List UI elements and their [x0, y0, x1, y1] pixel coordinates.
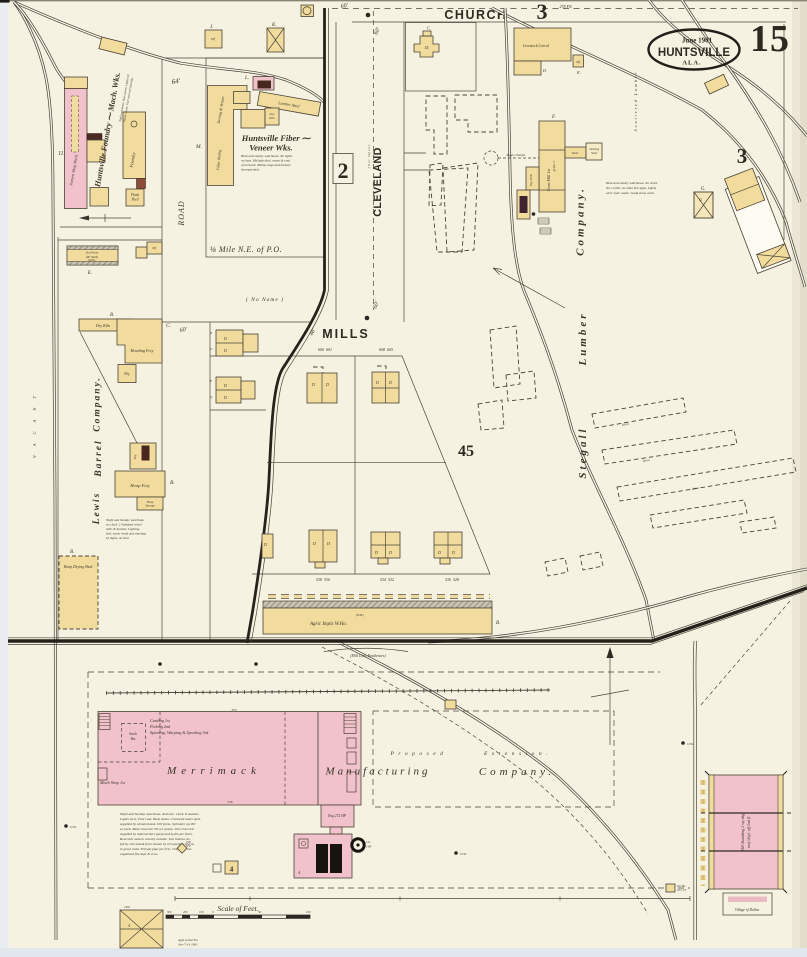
svg-text:D: D — [223, 348, 227, 353]
svg-text:Stegall: Stegall — [577, 426, 589, 478]
svg-text:B.: B. — [70, 550, 74, 555]
svg-text:CLEVELAND: CLEVELAND — [372, 147, 384, 217]
svg-text:Eng: Eng — [133, 454, 137, 460]
svg-text:supplied by elevated tank 100': supplied by elevated tank 100' press. Sp… — [120, 822, 196, 826]
svg-text:Reservoir tank in country outs: Reservoir tank in country outside. Two b… — [119, 837, 191, 841]
svg-text:A: A — [297, 870, 301, 875]
svg-text:D: D — [388, 380, 392, 385]
svg-text:MILLS: MILLS — [322, 327, 370, 341]
svg-text:E.: E. — [576, 70, 581, 75]
svg-text:Mach Shop 1st: Mach Shop 1st — [99, 780, 126, 785]
svg-text:11.: 11. — [58, 151, 65, 157]
svg-text:No 2 mills: no other fire apps: No 2 mills: no other fire apps. Lights — [605, 186, 657, 190]
svg-text:Company.: Company. — [93, 376, 103, 432]
svg-text:elect. fuel: waste. Good stone: elect. fuel: waste. Good stone work. — [606, 191, 655, 195]
svg-text:C.: C. — [427, 26, 431, 31]
svg-text:Agric Impls W.Ho.: Agric Impls W.Ho. — [309, 622, 347, 627]
svg-text:556: 556 — [227, 800, 232, 804]
svg-text:530 528: 530 528 — [445, 577, 459, 582]
svg-text:D: D — [223, 383, 227, 388]
svg-text:V A C A N T: V A C A N T — [32, 392, 37, 458]
svg-text:15: 15 — [750, 18, 790, 60]
svg-text:Huntsville Fiber ⁓: Huntsville Fiber ⁓ — [241, 133, 312, 143]
svg-text:Stock: Stock — [129, 732, 137, 736]
svg-text:O.W.: O.W. — [460, 852, 467, 856]
svg-text:Wagon Transfer: Wagon Transfer — [506, 153, 526, 157]
svg-text:Shed: Shed — [591, 152, 597, 155]
svg-text:O.W.: O.W. — [70, 825, 77, 829]
svg-text:Rm: Rm — [130, 737, 136, 741]
svg-text:100': 100' — [366, 845, 372, 849]
svg-text:Hoop Drying Shed: Hoop Drying Shed — [63, 565, 93, 569]
svg-text:Village of Dallas: Village of Dallas — [735, 908, 760, 912]
svg-text:538 536: 538 536 — [316, 577, 330, 582]
svg-text:Lumber: Lumber — [577, 311, 589, 366]
svg-text:Night and Sunday watchman: Night and Sunday watchman — [105, 518, 144, 522]
svg-text:Storage: Storage — [145, 504, 155, 508]
svg-text:Lewis: Lewis — [92, 492, 102, 526]
svg-text:B.: B. — [496, 621, 500, 626]
svg-text:300: 300 — [167, 910, 172, 914]
svg-text:(W.H.): (W.H.) — [356, 613, 364, 617]
svg-text:D: D — [437, 550, 441, 555]
svg-text:18.6: 18.6 — [124, 905, 130, 909]
svg-text:Flask: Flask — [130, 193, 139, 197]
svg-text:incorporated.: incorporated. — [241, 168, 260, 172]
svg-text:(Mill Girls Residences): (Mill Girls Residences) — [350, 654, 386, 658]
svg-text:ALA.: ALA. — [682, 60, 701, 67]
svg-text:G.: G. — [701, 187, 706, 192]
svg-text:mills & buckets. Lighting: mills & buckets. Lighting — [106, 527, 140, 531]
svg-text:Heading Fcty: Heading Fcty — [130, 348, 154, 353]
svg-text:Proposed: Proposed — [390, 751, 448, 757]
svg-text:D: D — [388, 550, 392, 555]
svg-text:Keg W.Ho: Keg W.Ho — [529, 173, 533, 187]
svg-text:⅛ Mile N.E. of P.O.: ⅛ Mile N.E. of P.O. — [210, 245, 282, 254]
svg-text:3: 3 — [537, 0, 548, 24]
svg-text:608 605: 608 605 — [379, 347, 393, 352]
svg-text:4: 4 — [230, 866, 234, 874]
svg-text:J.: J. — [210, 25, 213, 30]
svg-text:Ch.: Ch. — [366, 840, 371, 844]
svg-text:no clock. 2 Stoddard wheel: no clock. 2 Stoddard wheel — [106, 523, 142, 527]
svg-text:Cleaning: Cleaning — [589, 148, 600, 151]
svg-text:534 532: 534 532 — [380, 577, 394, 582]
svg-text:(Not Open): (Not Open) — [367, 144, 371, 168]
svg-text:D: D — [375, 380, 379, 385]
svg-text:A: A — [257, 562, 261, 567]
svg-text:D: D — [263, 542, 267, 547]
svg-text:200: 200 — [183, 910, 188, 914]
svg-text:D: D — [223, 395, 227, 400]
svg-text:Picking 2nd: Picking 2nd — [149, 724, 171, 729]
svg-text:Heat and sundry watchman. No l: Heat and sundry watchman. No lights — [240, 154, 293, 158]
svg-text:D: D — [312, 541, 316, 546]
svg-text:50: 50 — [258, 910, 262, 914]
svg-text:278 FN.: 278 FN. — [559, 4, 572, 9]
svg-text:600 601: 600 601 — [318, 347, 332, 352]
svg-text:Kiln: Kiln — [268, 116, 275, 120]
svg-text:E.: E. — [87, 270, 93, 276]
svg-text:Dry Kiln: Dry Kiln — [95, 323, 110, 328]
svg-text:Manufacturing: Manufacturing — [325, 766, 431, 778]
svg-text:Scattered Lumber: Scattered Lumber — [633, 71, 638, 131]
svg-text:O.W.: O.W. — [687, 742, 694, 746]
svg-text:Veneer Wks.: Veneer Wks. — [249, 143, 292, 153]
svg-text:C.: C. — [166, 323, 171, 329]
svg-text:100: 100 — [306, 910, 311, 914]
svg-text:3: 3 — [737, 144, 748, 168]
svg-text:D.: D. — [424, 45, 429, 50]
svg-text:Jun-7-14 1901: Jun-7-14 1901 — [178, 943, 198, 947]
svg-text:K.: K. — [271, 23, 277, 28]
svg-text:Corn Mill 1st: Corn Mill 1st — [546, 168, 551, 191]
svg-text:D: D — [325, 382, 329, 387]
svg-text:Extension.: Extension. — [483, 751, 552, 757]
svg-text:Dry: Dry — [123, 372, 130, 376]
svg-text:D: D — [451, 550, 455, 555]
svg-text:June 1901: June 1901 — [682, 37, 713, 45]
svg-text:supplied by underwriters pump: supplied by underwriters pump and hyd'ts… — [120, 832, 193, 836]
svg-text:64': 64' — [171, 77, 181, 86]
svg-text:Lights elect. Fuel coal. Heat: Lights elect. Fuel coal. Heat steam. Cro… — [119, 817, 201, 821]
svg-text:ROAD: ROAD — [177, 200, 186, 226]
svg-text:HUNTSVILLE: HUNTSVILLE — [658, 47, 731, 59]
svg-text:Eng 272 HP: Eng 272 HP — [327, 814, 347, 818]
svg-text:Mill Boarding 2 sty shgl: Mill Boarding 2 sty shgl — [740, 812, 745, 853]
svg-text:M.: M. — [195, 144, 202, 150]
svg-text:45: 45 — [458, 443, 474, 460]
svg-text:Company.: Company. — [575, 186, 587, 256]
svg-text:D.: D. — [542, 68, 547, 73]
svg-text:Barrel: Barrel — [94, 439, 104, 477]
svg-text:at work. Main reservoir 30 cyl: at work. Main reservoir 30 cyl. piston. … — [120, 827, 195, 831]
svg-text:( No Name ): ( No Name ) — [246, 296, 284, 303]
svg-text:10'x 10': 10'x 10' — [677, 888, 687, 892]
svg-text:Hoop Fcty: Hoop Fcty — [129, 483, 150, 488]
svg-text:F.: F. — [551, 115, 556, 120]
svg-text:Shed: Shed — [572, 151, 579, 155]
svg-text:roof sh'gl. off 2nd fl.: roof sh'gl. off 2nd fl. — [746, 816, 751, 849]
svg-text:555: 555 — [231, 708, 236, 712]
svg-text:Shed: Shed — [132, 198, 139, 202]
svg-text:D: D — [374, 550, 378, 555]
svg-text:Company.: Company. — [479, 766, 555, 778]
svg-text:Livestock Corral: Livestock Corral — [522, 44, 549, 48]
svg-text:2: 2 — [338, 158, 349, 183]
svg-text:of network. Mill'gs hags and b: of network. Mill'gs hags and buckets — [241, 163, 291, 167]
svg-text:Scale of Feet.: Scale of Feet. — [217, 904, 258, 913]
svg-text:100: 100 — [199, 910, 204, 914]
svg-text:Night and Sunday watchman. And: Night and Sunday watchman. And elec. clo… — [119, 812, 200, 816]
svg-text:D: D — [223, 336, 227, 341]
svg-text:B.: B. — [110, 313, 114, 318]
svg-text:Agts serial No.: Agts serial No. — [177, 938, 198, 942]
svg-text:organized fire dept & crew.: organized fire dept & crew. — [120, 852, 158, 856]
svg-text:W.Ho.: W.Ho. — [88, 258, 96, 262]
svg-text:Merrimack: Merrimack — [166, 765, 261, 777]
svg-text:B.: B. — [170, 480, 175, 486]
svg-text:P: P — [209, 379, 212, 383]
svg-text:/2: /2 — [698, 198, 702, 202]
svg-text:W.T.: W.T. — [186, 844, 191, 848]
svg-text:grain 2': grain 2' — [552, 160, 556, 171]
svg-text:D: D — [326, 541, 330, 546]
svg-text:D: D — [311, 382, 315, 387]
svg-text:L.: L. — [244, 76, 249, 81]
svg-text:Carding 1st: Carding 1st — [150, 718, 171, 723]
svg-text:Heat and sundry watchman. No c: Heat and sundry watchman. No clock. — [605, 181, 658, 185]
